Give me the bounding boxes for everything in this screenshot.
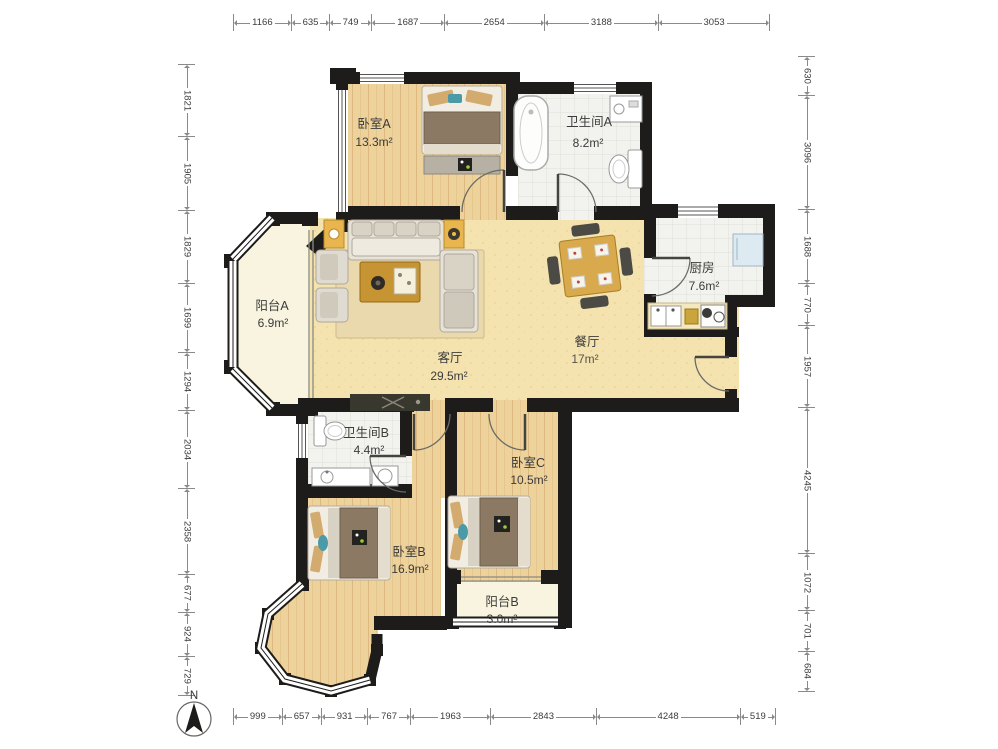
window-bathroom-b-west (296, 424, 308, 458)
washing-machine (610, 96, 642, 122)
dimension-label: 1963 (438, 712, 463, 722)
dimension-label: 999 (248, 712, 268, 722)
dimension-label: 4245 (802, 468, 812, 493)
dimension-label: 729 (182, 666, 192, 686)
dimension-label: 2034 (182, 437, 192, 462)
side-table-left (324, 220, 344, 248)
dimension-label: 1166 (250, 18, 274, 28)
room-label-bathroom-b-area: 4.4m² (354, 443, 385, 457)
bed-bedroom-a (422, 86, 502, 174)
dimension-label: 2654 (482, 18, 507, 28)
room-label-bathroom-a-name: 卫生间A (566, 115, 613, 129)
dimension-label: 519 (748, 712, 768, 722)
vanity-sink (312, 466, 398, 486)
bathtub (514, 96, 548, 170)
dimension-label: 770 (802, 295, 812, 315)
dimension-label: 1957 (802, 354, 812, 379)
window-kitchen-north (678, 204, 718, 218)
dimension-label: 931 (335, 712, 355, 722)
room-label-living-area: 29.5m² (430, 369, 467, 383)
dimension-label: 677 (182, 583, 192, 603)
fridge (733, 234, 763, 266)
dimension-label: 4248 (656, 712, 681, 722)
dimension-label: 630 (802, 66, 812, 86)
bed-bedroom-b (308, 506, 390, 580)
room-label-bedroom-b-name: 卧室B (392, 544, 425, 559)
side-table-right (444, 220, 464, 248)
room-label-bedroom-a-name: 卧室A (357, 116, 391, 131)
dimension-label: 2843 (531, 712, 556, 722)
window-bedroom-a-west (336, 90, 348, 212)
room-label-dining-area: 17m² (571, 352, 598, 366)
bedroom-a-threshold (460, 206, 506, 220)
dimension-label: 1829 (182, 234, 192, 259)
dimension-label: 3096 (802, 140, 812, 165)
room-label-bedroom-c-name: 卧室C (511, 455, 545, 470)
room-label-balcony-a-name: 阳台A (255, 298, 289, 313)
dimension-label: 1687 (395, 18, 420, 28)
dimension-label: 924 (182, 624, 192, 644)
dimension-label: 3053 (702, 18, 727, 28)
dimension-label: 1294 (182, 369, 192, 394)
dimension-label: 1072 (802, 570, 812, 595)
compass-north-label: N (190, 690, 198, 702)
room-label-kitchen-area: 7.6m² (689, 279, 720, 293)
room-label-dining-name: 餐厅 (574, 334, 599, 349)
compass: N (177, 690, 211, 736)
window-bathroom-a-north (574, 82, 616, 94)
window-bedroom-a-north (360, 72, 404, 84)
tv-cabinet (350, 394, 430, 411)
dimension-label: 657 (292, 712, 312, 722)
dimension-label: 2358 (182, 519, 192, 544)
balcony-b-threshold (459, 570, 543, 582)
dimension-label: 1688 (802, 234, 812, 259)
coffee-table (360, 262, 420, 302)
room-label-living-name: 客厅 (437, 350, 462, 365)
kitchen-counter (648, 303, 727, 329)
room-label-balcony-b-name: 阳台B (485, 594, 518, 609)
room-label-bathroom-b-name: 卫生间B (343, 426, 389, 440)
room-label-balcony-a-area: 6.9m² (258, 316, 289, 330)
room-label-balcony-b-area: 3.0m² (487, 612, 518, 626)
floor-plan-page: 11666357491687265431883053 9996579317671… (0, 0, 998, 749)
north-arrow-icon (185, 703, 203, 733)
dimension-label: 635 (301, 18, 321, 28)
room-label-bedroom-b-area: 16.9m² (391, 562, 428, 576)
hallway-floor (412, 400, 445, 498)
bedroom-c-threshold (493, 400, 527, 414)
room-label-bedroom-c-area: 10.5m² (510, 473, 547, 487)
room-label-bathroom-a-area: 8.2m² (573, 136, 604, 150)
dimension-label: 684 (802, 661, 812, 681)
room-label-kitchen-name: 厨房 (689, 260, 714, 275)
kitchen-threshold (644, 258, 656, 294)
dimension-label: 3188 (589, 18, 614, 28)
dimension-label: 701 (802, 621, 812, 641)
bathroom-a-threshold (558, 206, 594, 220)
floor-plan-drawing: 卧室A 13.3m² 卫生间A 8.2m² 厨房 7.6m² 阳台A 6.9m²… (0, 0, 998, 749)
dimension-label: 1905 (182, 161, 192, 186)
dimension-label: 1821 (182, 88, 192, 113)
room-label-bedroom-a-area: 13.3m² (355, 135, 392, 149)
bed-bedroom-c (448, 496, 530, 568)
dimension-label: 749 (341, 18, 361, 28)
bathroom-b-threshold (400, 456, 412, 484)
dimension-label: 1699 (182, 305, 192, 330)
dimension-label: 767 (379, 712, 399, 722)
entrance-threshold (725, 357, 737, 389)
